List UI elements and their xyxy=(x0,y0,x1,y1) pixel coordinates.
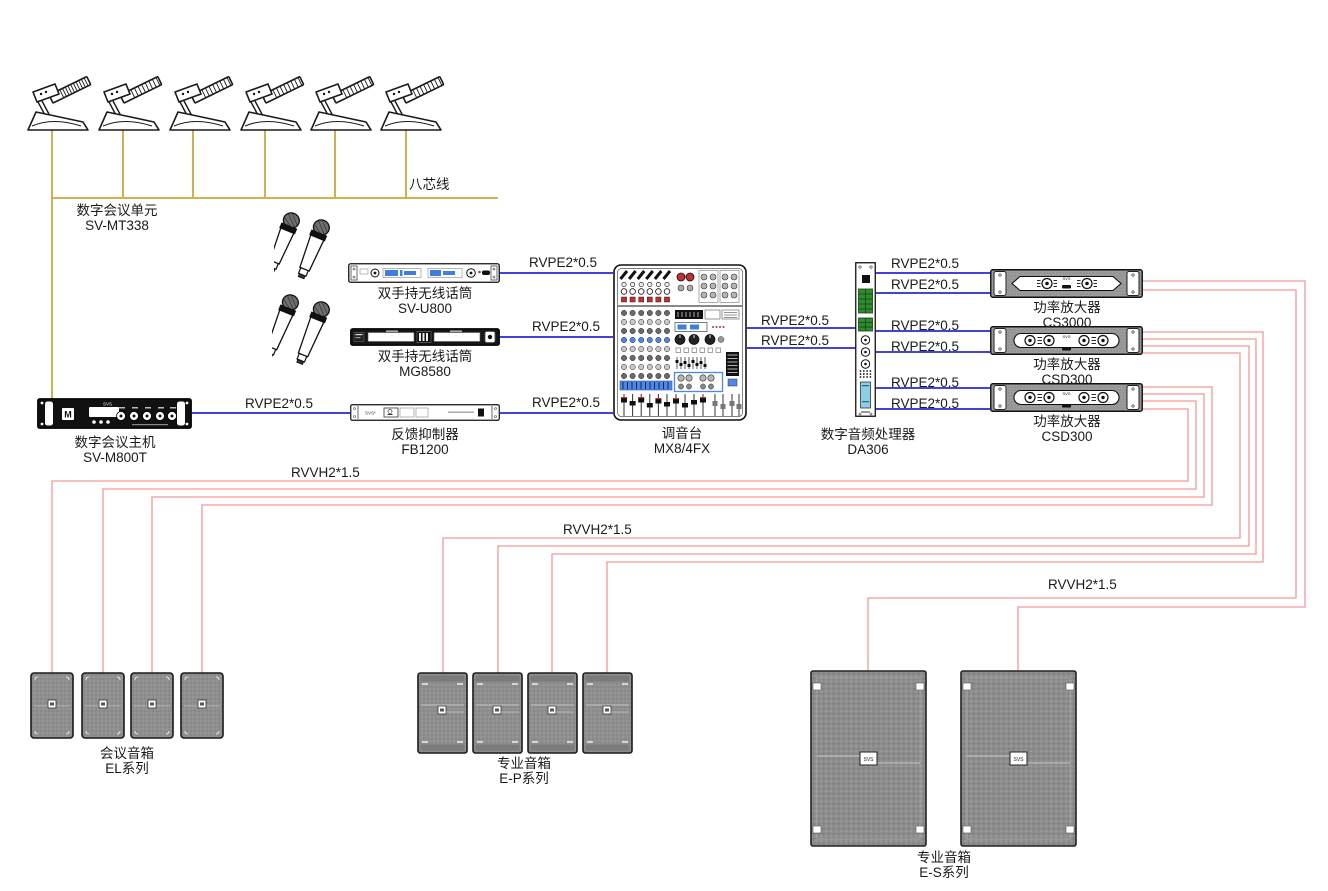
conference-speaker-el xyxy=(81,672,125,739)
conference-speaker-el xyxy=(180,672,224,739)
cable-label-rvpe-mixer-a: RVPE2*0.5 xyxy=(761,313,829,328)
conference-host-sv-m800t: M SVS xyxy=(37,398,192,429)
audio-processor-da306 xyxy=(855,262,876,417)
pro-speaker-ep xyxy=(527,672,578,754)
conference-mic-icon xyxy=(378,70,448,132)
feedback-suppressor-fb1200: SVS* xyxy=(350,404,500,421)
svg-text:SVS: SVS xyxy=(1062,334,1070,339)
pro-speaker-es: SVS xyxy=(810,670,927,847)
cable-label-rvpe-amp2-b: RVPE2*0.5 xyxy=(891,339,959,354)
cable-label-rvpe-amp2-a: RVPE2*0.5 xyxy=(891,318,959,333)
svg-text:SVS: SVS xyxy=(1062,276,1070,281)
svg-text:SVS: SVS xyxy=(1013,757,1024,763)
cable-label-rvpe-amp3-a: RVPE2*0.5 xyxy=(891,375,959,390)
cable-label-rvpe-u800: RVPE2*0.5 xyxy=(529,255,597,270)
pro-speaker-ep xyxy=(417,672,468,754)
cable-label-rvpe-fb1200: RVPE2*0.5 xyxy=(532,395,600,410)
svg-text:SVS: SVS xyxy=(103,402,112,407)
pro-speaker-es: SVS xyxy=(960,670,1077,847)
label-pro-speakers-es: 专业音箱 E-S系列 xyxy=(874,850,1014,880)
svg-text:SVS: SVS xyxy=(863,757,874,763)
cable-label-rvpe-amp3-b: RVPE2*0.5 xyxy=(891,396,959,411)
label-conference-host: 数字会议主机 SV-M800T xyxy=(45,435,185,465)
svg-text:SVS*: SVS* xyxy=(365,411,376,416)
label-feedback-suppressor: 反馈抑制器 FB1200 xyxy=(355,427,495,457)
label-conference-speakers: 会议音箱 EL系列 xyxy=(57,746,197,776)
handheld-mic-pair-icon xyxy=(272,288,356,388)
conference-mic-icon xyxy=(238,70,308,132)
label-wireless-receiver-2: 双手持无线话筒 MG8580 xyxy=(355,349,495,379)
cable-label-eight-core: 八芯线 xyxy=(409,177,450,192)
cable-label-rvpe-amp1-a: RVPE2*0.5 xyxy=(891,256,959,271)
label-amplifier-2: 功率放大器 CSD300 xyxy=(997,357,1137,387)
pro-speaker-ep xyxy=(582,672,633,754)
label-amplifier-1: 功率放大器 CS3000 xyxy=(997,300,1137,330)
handheld-mic-pair-icon xyxy=(274,208,354,298)
pro-speaker-ep xyxy=(472,672,523,754)
label-pro-speakers-ep: 专业音箱 E-P系列 xyxy=(454,756,594,786)
cable-label-rvpe-host: RVPE2*0.5 xyxy=(245,396,313,411)
label-conference-mics: 数字会议单元 SV-MT338 xyxy=(47,203,187,233)
conference-mic-icon xyxy=(96,70,166,132)
label-mixer: 调音台 MX8/4FX xyxy=(612,426,752,456)
cable-label-rvpe-amp1-b: RVPE2*0.5 xyxy=(891,277,959,292)
conference-speaker-el xyxy=(30,672,74,739)
av-system-diagram: M SVS SVS* xyxy=(0,0,1328,891)
conference-mic-icon xyxy=(25,70,95,132)
conference-mic-icon xyxy=(167,70,237,132)
svg-text:M: M xyxy=(64,410,72,420)
cable-label-rvpe-mg8580: RVPE2*0.5 xyxy=(532,319,600,334)
cable-label-rvpe-mixer-b: RVPE2*0.5 xyxy=(761,333,829,348)
mixer-mx8-4fx xyxy=(613,264,747,421)
conference-mic-icon xyxy=(308,70,378,132)
amplifier-cs3000: SVS xyxy=(990,269,1143,298)
cable-label-rvvh-el: RVVH2*1.5 xyxy=(291,465,360,480)
label-audio-processor: 数字音频处理器 DA306 xyxy=(798,427,938,457)
cable-label-rvvh-es: RVVH2*1.5 xyxy=(1048,577,1117,592)
label-amplifier-3: 功率放大器 CSD300 xyxy=(997,414,1137,444)
wireless-receiver-sv-u800 xyxy=(348,263,500,283)
wireless-receiver-mg8580 xyxy=(350,328,500,346)
conference-speaker-el xyxy=(130,672,174,739)
label-wireless-receiver-1: 双手持无线话筒 SV-U800 xyxy=(355,286,495,316)
svg-text:SVS: SVS xyxy=(1062,391,1070,396)
amplifier-csd300: SVS xyxy=(990,326,1143,355)
cable-label-rvvh-ep: RVVH2*1.5 xyxy=(563,522,632,537)
amplifier-csd300: SVS xyxy=(990,383,1143,412)
